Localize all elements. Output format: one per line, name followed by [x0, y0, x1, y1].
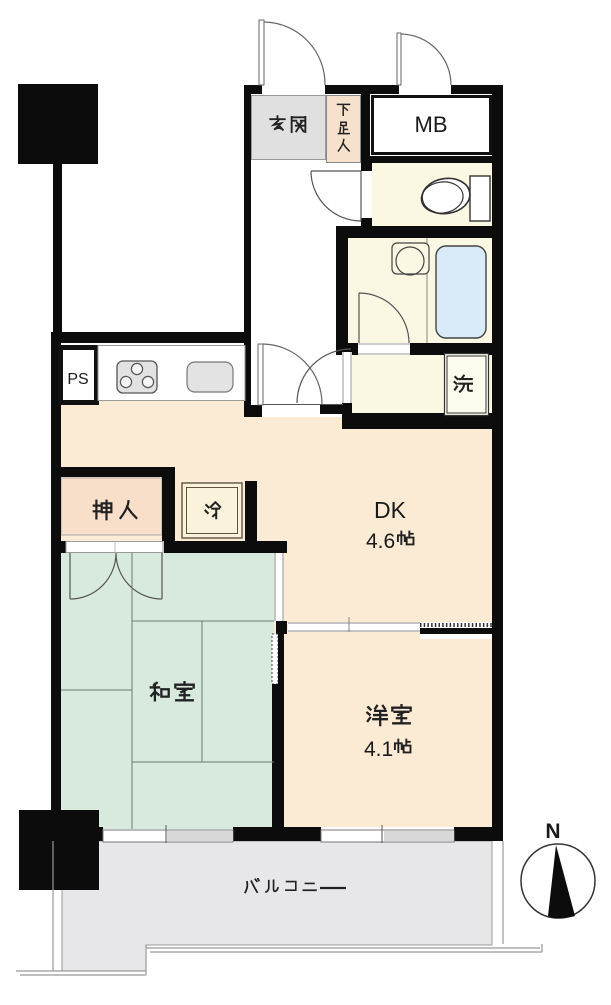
svg-text:DK: DK	[374, 497, 407, 523]
svg-text:N: N	[545, 820, 560, 843]
svg-text:4.6: 4.6	[366, 530, 395, 553]
svg-text:MB: MB	[415, 112, 448, 137]
svg-text:4.1: 4.1	[364, 738, 393, 761]
svg-text:PS: PS	[67, 371, 88, 388]
